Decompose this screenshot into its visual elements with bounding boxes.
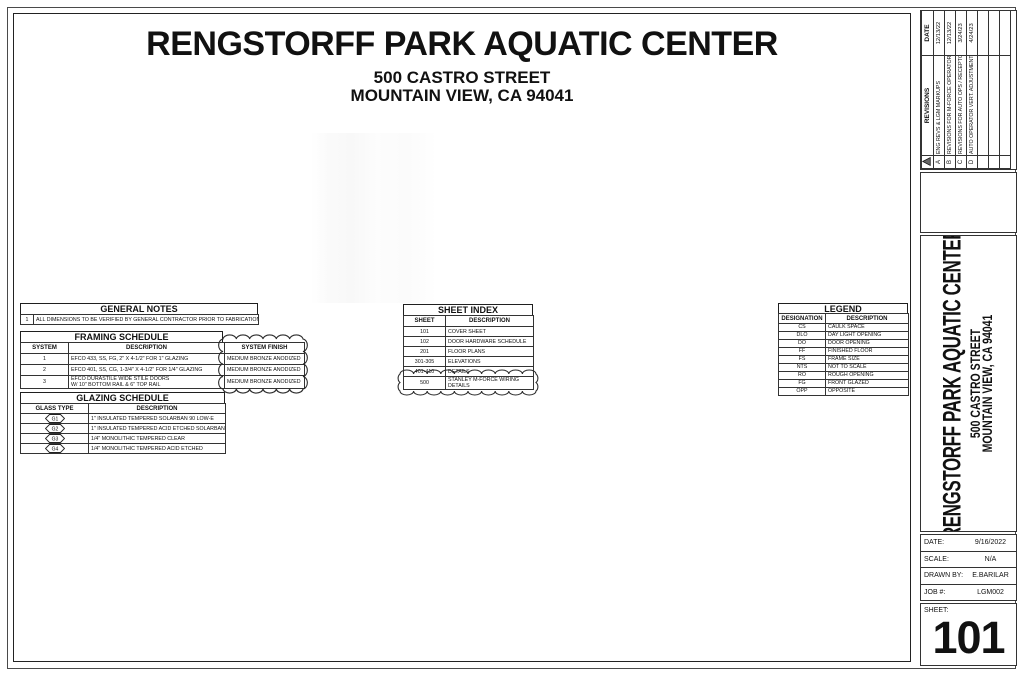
revision-delta-cell (922, 156, 934, 169)
info-label: DATE: (921, 539, 965, 546)
table-row: FF FINISHED FLOOR (779, 348, 909, 356)
legend-designation: FS (779, 356, 826, 364)
info-value: 9/16/2022 (965, 539, 1016, 546)
table-row: 101 COVER SHEET (404, 327, 534, 337)
legend-designation: RO (779, 372, 826, 380)
sheet-description: ELEVATIONS (446, 357, 534, 367)
header-row: GLASS TYPE DESCRIPTION (21, 404, 226, 414)
table-row: 201 FLOOR PLANS (404, 347, 534, 357)
revision-row: D AUTO OPERATOR VERT. ADJUSTMENT 4/24/23 (967, 11, 978, 169)
system-description: EFCO 401, SS, CG, 1-3/4" X 4-1/2" FOR 1/… (69, 365, 225, 376)
column-header: SYSTEM (21, 343, 69, 354)
revision-row: A ENG REVS & LGM MARKUPS 12/13/22 (934, 11, 945, 169)
info-row: SCALE: N/A (921, 552, 1016, 569)
glass-description: 1" INSULATED TEMPERED ACID ETCHED SOLARB… (89, 424, 226, 434)
legend-description: FRAME SIZE (826, 356, 909, 364)
revision-description: REVISIONS FOR M-FORCE OPERATOR (945, 56, 956, 156)
info-row: DRAWN BY: E.BARILAR (921, 568, 1016, 585)
sheet-description: COVER SHEET (446, 327, 534, 337)
sheet-number-cell: 102 (404, 337, 446, 347)
system-number: 2 (21, 365, 69, 376)
revision-letter (978, 156, 989, 169)
table-row: NTS NOT TO SCALE (779, 364, 909, 372)
titleblock-project-box: RENGSTORFF PARK AQUATIC CENTER 500 CASTR… (920, 235, 1017, 532)
column-header: DESIGNATION (779, 314, 826, 324)
column-header: DATE (922, 11, 934, 56)
system-description: EFCO DURASTILE WIDE STILE DOORS W/ 10" B… (69, 376, 225, 389)
table-row: FS FRAME SIZE (779, 356, 909, 364)
general-notes-table: 1 ALL DIMENSIONS TO BE VERIFIED BY GENER… (20, 314, 259, 325)
column-header: SHEET (404, 316, 446, 327)
revision-letter: D (967, 156, 978, 169)
cover-heading: RENGSTORFF PARK AQUATIC CENTER 500 CASTR… (13, 26, 911, 105)
project-address-line1: 500 CASTRO STREET (13, 69, 911, 87)
revision-letter: B (945, 156, 956, 169)
legend-designation: FG (779, 380, 826, 388)
revision-date (978, 11, 989, 56)
table-row: 102 DOOR HARDWARE SCHEDULE (404, 337, 534, 347)
glass-type-tag: G4 (21, 444, 89, 454)
revision-row (989, 11, 1000, 169)
revisions-table: REVISIONS DATE A ENG REVS & LGM MARKUPS … (921, 10, 1011, 169)
legend-description: NOT TO SCALE (826, 364, 909, 372)
stamp-box (920, 172, 1017, 233)
revision-cloud (218, 333, 310, 397)
revisions-block: REVISIONS DATE A ENG REVS & LGM MARKUPS … (920, 10, 1017, 170)
revision-row: C REVISIONS FOR AUTO OPS / RECEPTOR 3/24… (956, 11, 967, 169)
hexagon-tag-icon: G3 (45, 434, 65, 443)
titleblock-address-line2: MOUNTAIN VIEW, CA 94041 (980, 315, 996, 453)
table-row: OPP OPPOSITE (779, 388, 909, 396)
legend-designation: DO (779, 340, 826, 348)
table-row: CS CAULK SPACE (779, 324, 909, 332)
revision-description: ENG REVS & LGM MARKUPS (934, 56, 945, 156)
revision-letter: C (956, 156, 967, 169)
header-row: SHEET DESCRIPTION (404, 316, 534, 327)
revision-description (989, 56, 1000, 156)
sheet-description: FLOOR PLANS (446, 347, 534, 357)
sheet-label: SHEET: (924, 607, 949, 614)
header-row: DESIGNATION DESCRIPTION (779, 314, 909, 324)
revision-letter (1000, 156, 1011, 169)
glass-type-tag: G2 (21, 424, 89, 434)
faint-preview-image (296, 133, 444, 303)
info-value: LGM002 (965, 589, 1016, 596)
table-row: G4 1/4" MONOLITHIC TEMPERED ACID ETCHED (21, 444, 226, 454)
revision-description (978, 56, 989, 156)
table-row: 1 ALL DIMENSIONS TO BE VERIFIED BY GENER… (21, 315, 259, 325)
svg-text:G1: G1 (51, 417, 58, 423)
legend-description: FINISHED FLOOR (826, 348, 909, 356)
table-row: G3 1/4" MONOLITHIC TEMPERED CLEAR (21, 434, 226, 444)
column-header: GLASS TYPE (21, 404, 89, 414)
table-row: RO ROUGH OPENING (779, 372, 909, 380)
sheet-description: DOOR HARDWARE SCHEDULE (446, 337, 534, 347)
table-row: DO DOOR OPENING (779, 340, 909, 348)
revision-date: 12/13/22 (934, 11, 945, 56)
legend-table: DESIGNATION DESCRIPTION CS CAULK SPACE D… (778, 313, 909, 396)
glazing-schedule-table: GLASS TYPE DESCRIPTION G1 1" INSULATED (20, 403, 226, 454)
revision-description (1000, 56, 1011, 156)
revision-cloud (395, 369, 543, 397)
general-notes-section: GENERAL NOTES 1 ALL DIMENSIONS TO BE VER… (20, 303, 258, 325)
table-row: 301-305 ELEVATIONS (404, 357, 534, 367)
hexagon-tag-icon: G4 (45, 444, 65, 453)
column-header: DESCRIPTION (69, 343, 225, 354)
titleblock-project-title: RENGSTORFF PARK AQUATIC CENTER (939, 235, 968, 532)
info-label: DRAWN BY: (921, 572, 965, 579)
legend-description: FRONT GLAZED (826, 380, 909, 388)
revision-letter: A (934, 156, 945, 169)
note-text: ALL DIMENSIONS TO BE VERIFIED BY GENERAL… (34, 315, 259, 325)
hexagon-tag-icon: G2 (45, 424, 65, 433)
glazing-schedule-section: GLAZING SCHEDULE GLASS TYPE DESCRIPTION … (20, 392, 225, 454)
hexagon-tag-icon: G1 (45, 414, 65, 423)
revision-description: AUTO OPERATOR VERT. ADJUSTMENT (967, 56, 978, 156)
info-value: N/A (965, 556, 1016, 563)
revision-description: REVISIONS FOR AUTO OPS / RECEPTOR (956, 56, 967, 156)
system-number: 3 (21, 376, 69, 389)
sheet-number: 101 (921, 613, 1016, 663)
legend-designation: OPP (779, 388, 826, 396)
revision-date: 3/24/23 (956, 11, 967, 56)
glass-description: 1" INSULATED TEMPERED SOLARBAN 90 LOW-E (89, 414, 226, 424)
revision-date (989, 11, 1000, 56)
svg-text:G3: G3 (51, 437, 58, 443)
glass-description: 1/4" MONOLITHIC TEMPERED CLEAR (89, 434, 226, 444)
system-description: EFCO 433, SS, FG, 2" X 4-1/2" FOR 1" GLA… (69, 354, 225, 365)
legend-description: CAULK SPACE (826, 324, 909, 332)
project-address-line2: MOUNTAIN VIEW, CA 94041 (13, 87, 911, 105)
info-label: JOB #: (921, 589, 965, 596)
table-row: DLO DAY LIGHT OPENING (779, 332, 909, 340)
note-number: 1 (21, 315, 34, 325)
titleblock-info-box: DATE: 9/16/2022 SCALE: N/A DRAWN BY: E.B… (920, 534, 1017, 601)
revision-date (1000, 11, 1011, 56)
glass-type-tag: G1 (21, 414, 89, 424)
svg-text:G2: G2 (51, 427, 58, 433)
column-header: DESCRIPTION (826, 314, 909, 324)
revision-delta-icon (922, 158, 931, 167)
sheet-number-cell: 101 (404, 327, 446, 337)
revision-row (978, 11, 989, 169)
table-row: G2 1" INSULATED TEMPERED ACID ETCHED SOL… (21, 424, 226, 434)
revision-date: 4/24/23 (967, 11, 978, 56)
header-row: REVISIONS DATE (922, 11, 934, 169)
legend-designation: DLO (779, 332, 826, 340)
table-row: G1 1" INSULATED TEMPERED SOLARBAN 90 LOW… (21, 414, 226, 424)
legend-description: OPPOSITE (826, 388, 909, 396)
legend-description: ROUGH OPENING (826, 372, 909, 380)
revision-row (1000, 11, 1011, 169)
legend-designation: FF (779, 348, 826, 356)
revision-row: B REVISIONS FOR M-FORCE OPERATOR 12/13/2… (945, 11, 956, 169)
info-row: JOB #: LGM002 (921, 585, 1016, 601)
legend-description: DOOR OPENING (826, 340, 909, 348)
column-header: REVISIONS (922, 56, 934, 156)
table-row: FG FRONT GLAZED (779, 380, 909, 388)
info-value: E.BARILAR (965, 572, 1016, 579)
column-header: DESCRIPTION (89, 404, 226, 414)
glass-description: 1/4" MONOLITHIC TEMPERED ACID ETCHED (89, 444, 226, 454)
glass-type-tag: G3 (21, 434, 89, 444)
legend-designation: NTS (779, 364, 826, 372)
revision-letter (989, 156, 1000, 169)
legend-designation: CS (779, 324, 826, 332)
info-label: SCALE: (921, 556, 965, 563)
sheet-number-cell: 301-305 (404, 357, 446, 367)
svg-text:G4: G4 (51, 447, 58, 453)
legend-section: LEGEND DESIGNATION DESCRIPTION CS CAULK … (778, 303, 908, 396)
revision-date: 12/13/22 (945, 11, 956, 56)
sheet-number-cell: 201 (404, 347, 446, 357)
legend-description: DAY LIGHT OPENING (826, 332, 909, 340)
project-title: RENGSTORFF PARK AQUATIC CENTER (13, 26, 911, 62)
column-header: DESCRIPTION (446, 316, 534, 327)
sheet-number-box: SHEET: 101 (920, 603, 1017, 666)
system-number: 1 (21, 354, 69, 365)
info-row: DATE: 9/16/2022 (921, 535, 1016, 552)
